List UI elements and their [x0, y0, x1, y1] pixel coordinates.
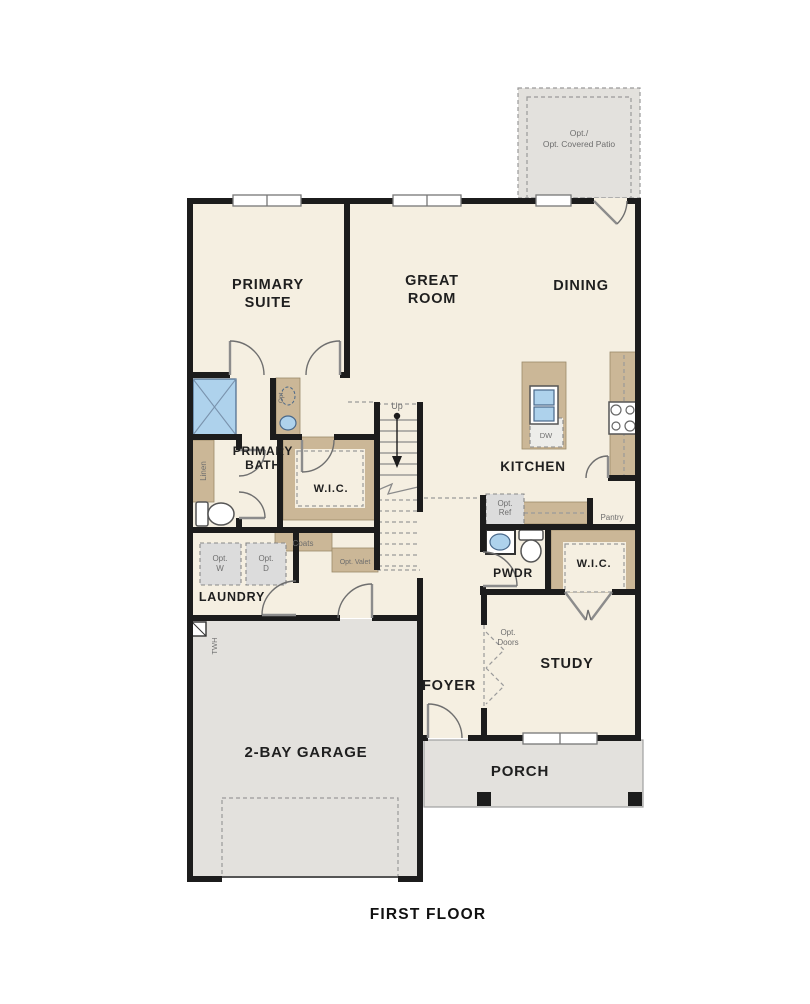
opt-ref-label-line2: Ref [499, 508, 512, 517]
pantry-label: Pantry [600, 513, 623, 522]
floor-plan-drawing: Opt./ Opt. Covered Patio PRIMARY SUITE G… [0, 0, 810, 1004]
kitchen-label: KITCHEN [500, 459, 566, 474]
primary-suite-label-line1: PRIMARY [232, 277, 304, 293]
opt-ref-label-line1: Opt. [497, 499, 512, 508]
range-cooktop [609, 402, 637, 434]
opt-valet-label: Opt. Valet [340, 559, 371, 566]
primary-suite-window [233, 195, 301, 206]
porch-post [477, 792, 491, 806]
great-room-label-line2: ROOM [408, 291, 456, 307]
pwdr-sink [486, 530, 515, 554]
foyer-label: FOYER [422, 678, 476, 694]
opt-w-label-line2: W [216, 564, 224, 573]
study-label: STUDY [540, 656, 593, 672]
island-sink [530, 386, 558, 424]
dw-label: DW [540, 431, 553, 440]
great-room-label-line1: GREAT [405, 273, 459, 289]
opt-doors-label-line1: Opt. [500, 628, 515, 637]
primary-suite-label-line2: SUITE [245, 295, 292, 311]
wic-primary-label: W.I.C. [314, 483, 349, 495]
great-room-window [393, 195, 461, 206]
linen-label: Linen [199, 461, 208, 481]
up-label: Up [391, 401, 403, 411]
opt-w-label-line1: Opt. [212, 554, 227, 563]
porch-label: PORCH [491, 763, 549, 780]
bath-toilet [196, 502, 234, 526]
twh-label: TWH [210, 637, 219, 654]
opt-sink-label: Opt. [278, 391, 285, 403]
dining-label: DINING [553, 278, 609, 294]
dining-window [536, 195, 571, 206]
tankless-water-heater [192, 622, 206, 636]
study-window [523, 733, 597, 744]
patio-label-line2: Opt. Covered Patio [543, 139, 616, 149]
plan-title: FIRST FLOOR [370, 906, 487, 923]
floor-plan-page: Opt./ Opt. Covered Patio PRIMARY SUITE G… [0, 0, 810, 1004]
porch-post [628, 792, 642, 806]
pwdr-label: PWDR [493, 566, 533, 580]
opt-doors-label-line2: Doors [497, 638, 518, 647]
opt-d-label-line1: Opt. [258, 554, 273, 563]
vanity-sink [280, 416, 296, 430]
coats-label: Coats [293, 539, 314, 548]
primary-bath-label-line2: BATH [245, 458, 281, 472]
wic-study-label: W.I.C. [577, 558, 612, 570]
laundry-label: LAUNDRY [199, 590, 265, 604]
garage-label: 2-BAY GARAGE [245, 744, 368, 761]
primary-bath-label-line1: PRIMARY [233, 444, 294, 458]
pwdr-toilet [519, 530, 543, 562]
opt-d-label-line2: D [263, 564, 269, 573]
patio-label-line1: Opt./ [570, 128, 589, 138]
